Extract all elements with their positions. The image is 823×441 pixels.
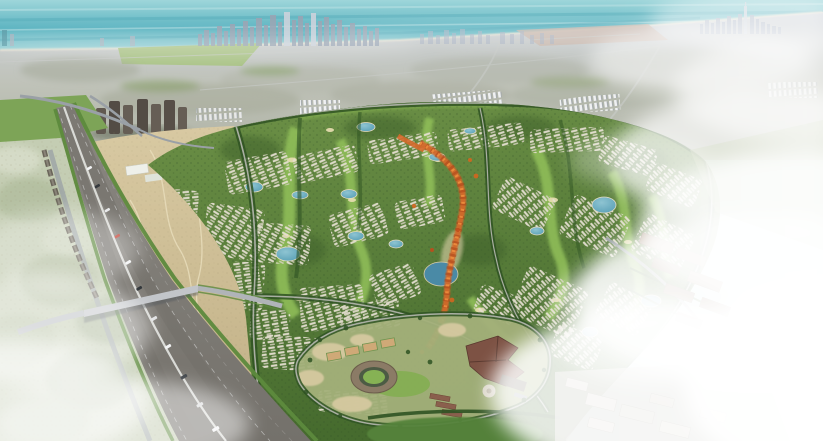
pond	[464, 128, 476, 134]
horizon-haze	[0, 36, 420, 56]
white-midrise-cluster	[196, 108, 242, 122]
pond	[389, 240, 403, 248]
dark-tower	[151, 104, 161, 134]
fairway	[427, 118, 431, 206]
scene-canvas	[0, 0, 823, 441]
aerial-render	[0, 0, 823, 441]
dark-tower	[164, 100, 175, 134]
ring-green-center	[363, 370, 385, 384]
dark-tower	[123, 105, 133, 134]
ring-building	[351, 361, 397, 393]
cloud	[550, 270, 690, 330]
cloud-wisp	[570, 132, 710, 188]
pond	[341, 190, 357, 199]
pond	[530, 227, 544, 235]
pond	[348, 232, 364, 241]
